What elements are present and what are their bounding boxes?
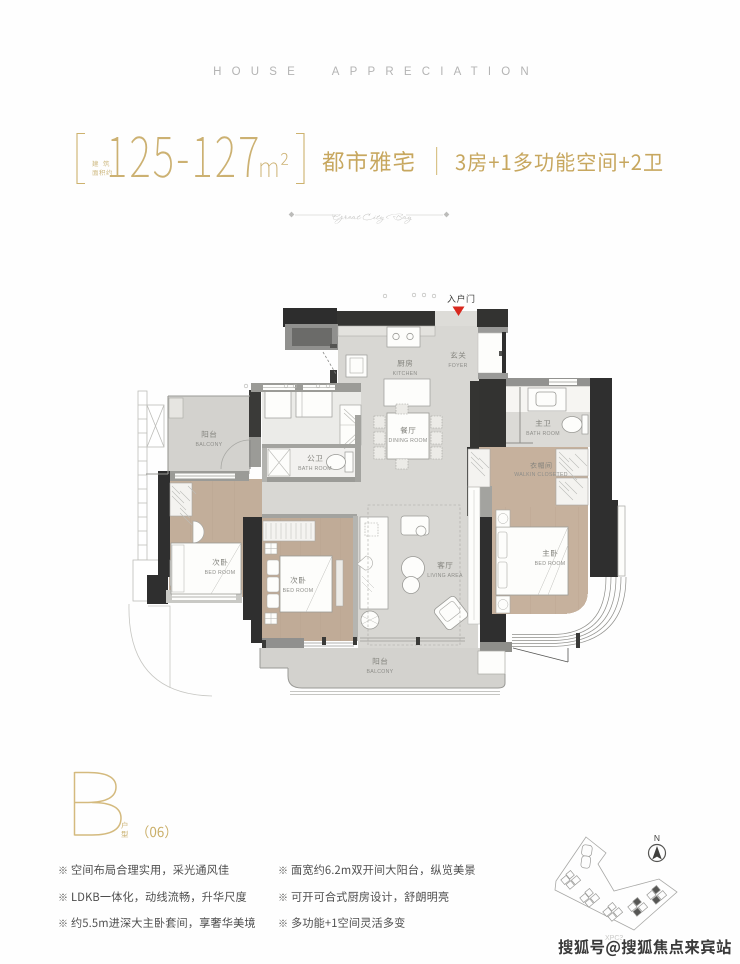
svg-text:BALCONY: BALCONY [196,442,223,448]
svg-text:DINING ROOM: DINING ROOM [388,438,427,444]
svg-text:BED ROOM: BED ROOM [535,561,566,567]
svg-text:LIVING AREA: LIVING AREA [427,573,463,579]
svg-text:N: N [654,833,660,843]
svg-text:WALKIN CLOSETED: WALKIN CLOSETED [514,472,568,478]
svg-text:BED ROOM: BED ROOM [205,570,236,576]
svg-text:HOUSE APPRECIATION: HOUSE APPRECIATION [213,66,539,78]
svg-text:BED ROOM: BED ROOM [283,588,314,594]
svg-text:BALCONY: BALCONY [367,669,394,675]
svg-text:BATH ROOM: BATH ROOM [526,431,560,437]
svg-text:FOYER: FOYER [448,363,467,369]
svg-text:BATH ROOM: BATH ROOM [298,466,332,472]
svg-text:KITCHEN: KITCHEN [393,371,418,377]
